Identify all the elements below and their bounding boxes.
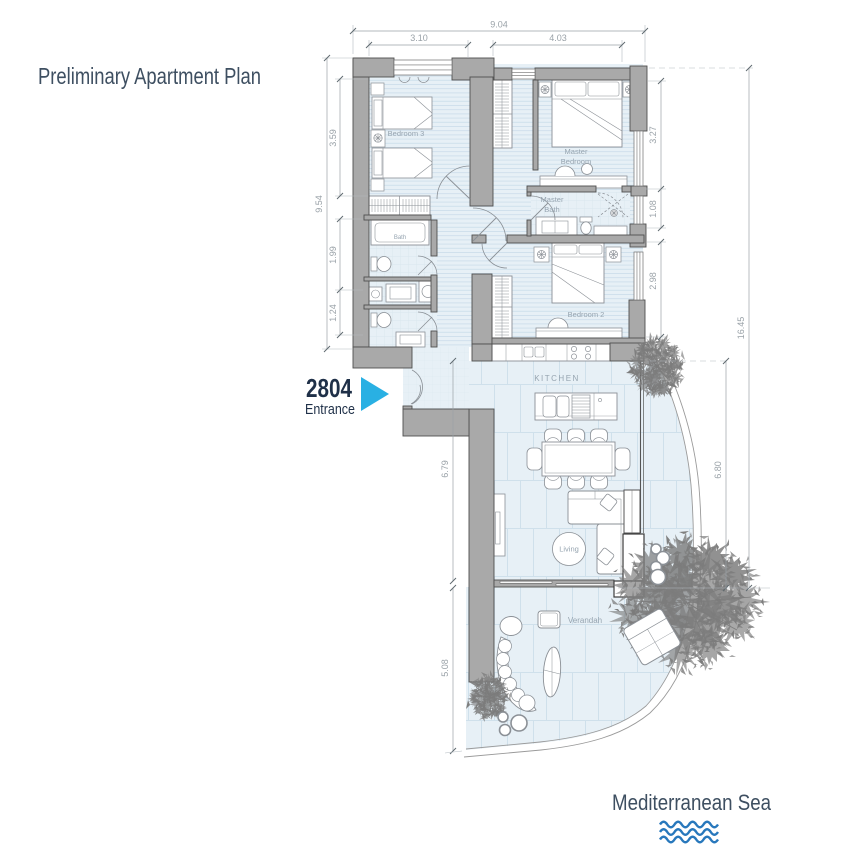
- svg-text:2804: 2804: [306, 373, 352, 403]
- svg-text:3.27: 3.27: [648, 126, 658, 144]
- svg-text:9.54: 9.54: [314, 195, 324, 213]
- svg-text:3.10: 3.10: [410, 33, 428, 43]
- svg-text:Bath: Bath: [394, 235, 406, 241]
- svg-text:Entrance: Entrance: [305, 401, 355, 418]
- svg-text:Bedroom 2: Bedroom 2: [568, 310, 605, 319]
- svg-text:KITCHEN: KITCHEN: [534, 374, 580, 383]
- svg-text:Master: Master: [541, 195, 564, 204]
- svg-text:Bedroom 3: Bedroom 3: [388, 129, 425, 138]
- svg-text:Mediterranean Sea: Mediterranean Sea: [612, 790, 772, 815]
- svg-text:Master: Master: [565, 147, 588, 156]
- svg-text:16.45: 16.45: [736, 317, 746, 340]
- svg-text:6.80: 6.80: [713, 461, 723, 479]
- svg-text:3.59: 3.59: [328, 129, 338, 147]
- svg-text:4.03: 4.03: [549, 33, 567, 43]
- svg-text:6.79: 6.79: [440, 460, 450, 478]
- svg-text:1.99: 1.99: [328, 246, 338, 264]
- svg-text:5.08: 5.08: [440, 659, 450, 677]
- svg-text:1.08: 1.08: [648, 200, 658, 218]
- svg-text:9.04: 9.04: [490, 20, 508, 30]
- svg-text:Bath: Bath: [544, 205, 559, 214]
- svg-text:Verandah: Verandah: [568, 616, 602, 625]
- svg-text:Bedroom: Bedroom: [561, 157, 591, 166]
- svg-text:Preliminary Apartment Plan: Preliminary Apartment Plan: [38, 63, 261, 89]
- svg-text:1.24: 1.24: [328, 304, 338, 322]
- svg-text:2.98: 2.98: [648, 272, 658, 290]
- svg-text:Living: Living: [559, 545, 579, 554]
